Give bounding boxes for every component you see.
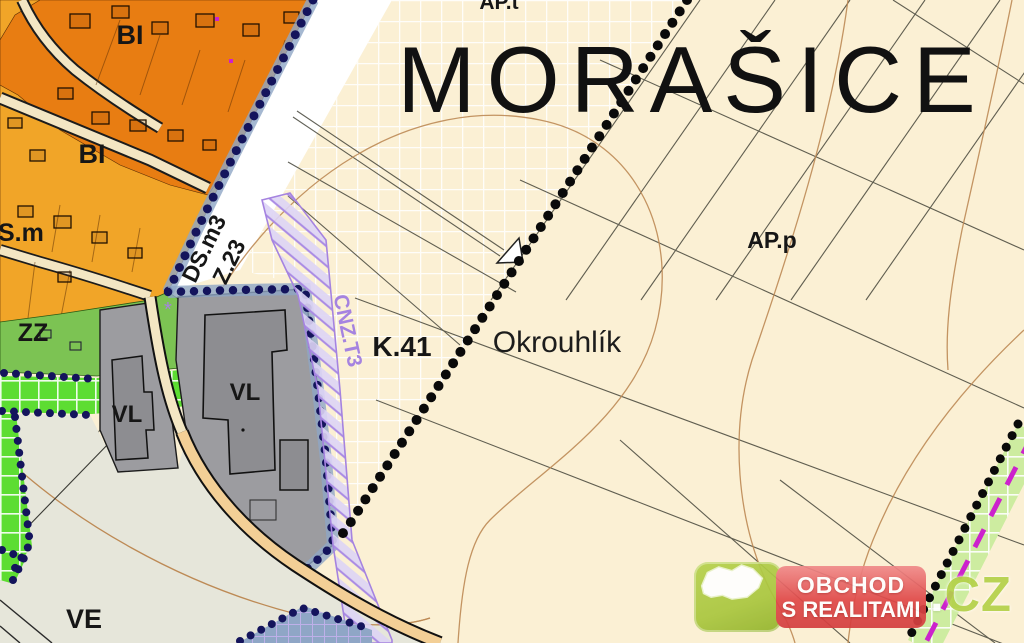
label-s-m: S.m xyxy=(0,219,44,247)
label-k41: K.41 xyxy=(372,331,431,362)
zoning-map-canvas: MORAŠICE AP.t S.m BI BI ZZ VL VL VE AP.p… xyxy=(0,0,1024,643)
label-okrouhlik: Okrouhlík xyxy=(493,326,622,359)
label-ap-t: AP.t xyxy=(479,0,518,14)
logo-tld-dot: . xyxy=(930,568,945,622)
logo-tld-text: CZ xyxy=(945,568,1012,622)
label-ve: VE xyxy=(66,604,102,634)
logo-tld: .CZ xyxy=(930,567,1012,623)
label-bi-2: BI xyxy=(79,139,106,169)
obchod-s-realitami-logo: OBCHOD S REALITAMI .CZ xyxy=(694,559,1016,641)
label-vl-main: VL xyxy=(230,379,261,406)
label-bi-1: BI xyxy=(117,20,144,50)
label-ap-p: AP.p xyxy=(747,227,796,253)
label-zz: ZZ xyxy=(18,319,49,347)
logo-line1: OBCHOD xyxy=(776,573,926,598)
zoning-map-screenshot: MORAŠICE AP.t S.m BI BI ZZ VL VL VE AP.p… xyxy=(0,0,1024,643)
label-vl-left: VL xyxy=(112,401,143,428)
label-asterisk: * xyxy=(164,299,172,321)
czech-map-icon xyxy=(694,562,782,632)
logo-banner: OBCHOD S REALITAMI xyxy=(776,566,926,628)
logo-line2: S REALITAMI xyxy=(776,598,926,622)
map-title: MORAŠICE xyxy=(397,27,986,132)
